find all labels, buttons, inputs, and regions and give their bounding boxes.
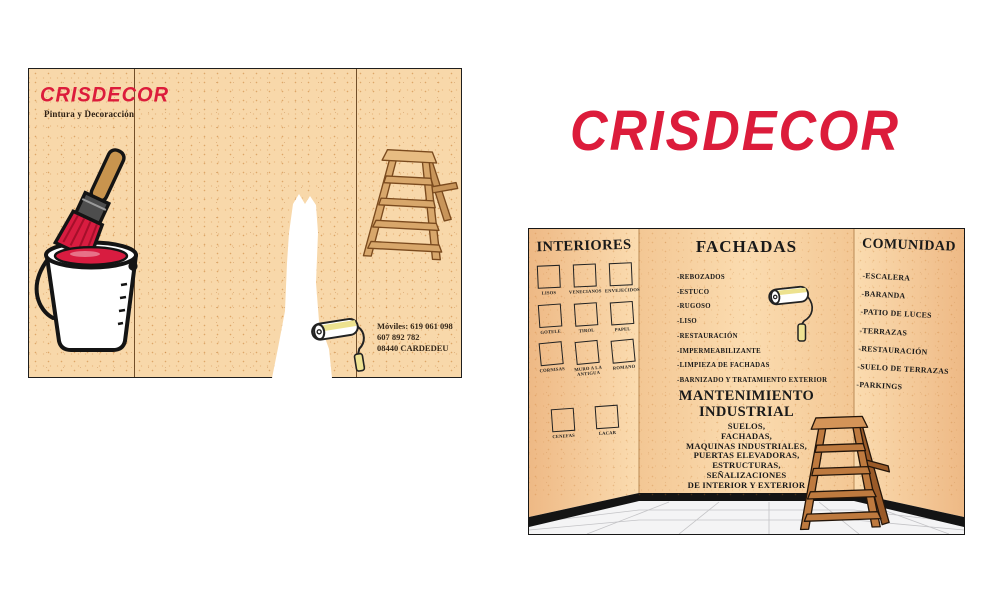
design-canvas: { "brand": { "name": "CRISDECOR", "tagli…: [0, 0, 1000, 600]
texture-swatch: CORNISAS: [534, 341, 569, 378]
service-list-item: -RESTAURACIÓN: [677, 330, 847, 345]
swatch-label: MURO A LA ANTIGUA: [572, 364, 605, 377]
swatch-label: CENEFAS: [547, 432, 579, 439]
texture-swatch: GOTELE: [533, 303, 567, 335]
paint-bucket-icon: [33, 137, 145, 365]
interiores-swatch-grid-bottom: CENEFAS LACAR: [546, 404, 625, 448]
swatch-box: [594, 405, 619, 430]
step-ladder-icon-interior: [791, 413, 897, 532]
swatch-box: [574, 340, 599, 365]
brand-logo-large: CRISDECOR: [570, 99, 930, 175]
texture-swatch: VENECIANOS: [568, 263, 601, 294]
contact-block: Móviles: 619 061 098 607 892 782 08440 C…: [377, 321, 461, 354]
swatch-label: GOTELE: [534, 327, 566, 334]
contact-phone-2: 607 892 782: [377, 332, 461, 343]
texture-swatch: ENVEJECIDOS: [604, 262, 637, 293]
swatch-box: [572, 264, 596, 288]
swatch-label: LACAR: [591, 429, 623, 436]
swatch-box: [538, 341, 563, 366]
service-list-item: -REBOZADOS: [677, 271, 847, 286]
fachadas-list: -REBOZADOS-ESTUCO-RUGOSO-LISO-RESTAURACI…: [677, 271, 847, 389]
swatch-label: CORNISAS: [536, 365, 568, 373]
swatch-label: PAPEL: [606, 325, 638, 332]
swatch-label: VENECIANOS: [569, 288, 601, 294]
texture-swatch: CENEFAS: [546, 407, 580, 439]
swatch-box: [608, 262, 632, 286]
swatch-label: ENVEJECIDOS: [605, 287, 637, 293]
swatch-label: LISOS: [533, 289, 565, 295]
service-list-item: -BARNIZADO Y TRATAMIENTO EXTERIOR: [677, 374, 847, 389]
texture-swatch: MURO A LA ANTIGUA: [570, 340, 605, 377]
interiores-swatch-grid: LISOS VENECIANOS ENVEJECIDOS GOTELE TIRO…: [532, 262, 640, 386]
swatch-box: [609, 300, 634, 325]
texture-swatch: TIROL: [569, 301, 603, 333]
texture-swatch: ROMANO: [606, 338, 641, 375]
brochure-interior-spread: INTERIORES LISOS VENECIANOS ENVEJECIDOS …: [528, 228, 965, 535]
texture-swatch: LISOS: [532, 265, 565, 296]
swatch-box: [537, 303, 562, 328]
contact-address: 08440 CARDEDEU: [377, 343, 461, 354]
interiores-title: INTERIORES: [532, 237, 636, 257]
fachadas-title: FACHADAS: [639, 237, 854, 257]
swatch-box: [610, 339, 635, 364]
texture-swatch: PAPEL: [605, 300, 639, 332]
swatch-label: TIROL: [570, 326, 602, 333]
service-list-item: -LIMPIEZA DE FACHADAS: [677, 359, 847, 374]
service-list-item: -RUGOSO: [677, 300, 847, 315]
brochure-cover: CRISDECOR Pintura y Decoracción: [28, 68, 462, 378]
contact-phone-1: Móviles: 619 061 098: [377, 321, 461, 332]
step-ladder-icon: [358, 147, 462, 264]
texture-swatch: LACAR: [590, 404, 624, 436]
service-list-item: -ESTUCO: [677, 286, 847, 301]
brand-logo: CRISDECOR: [40, 83, 169, 107]
swatch-box: [550, 408, 575, 433]
comunidad-list: -ESCALERA-BARANDA-PATIO DE LUCES-TERRAZA…: [856, 267, 963, 400]
service-list-item: -LISO: [677, 315, 847, 330]
swatch-box: [536, 265, 560, 289]
swatch-box: [573, 302, 598, 327]
paint-stripe-roller-icon: [259, 191, 371, 378]
mantenimiento-title-line1: MANTENIMIENTO: [639, 389, 854, 405]
paint-roller-icon: [767, 284, 815, 346]
swatch-label: ROMANO: [608, 363, 640, 371]
brand-tagline: Pintura y Decoracción: [44, 109, 134, 119]
service-list-item: -IMPERMEABILIZANTE: [677, 345, 847, 360]
